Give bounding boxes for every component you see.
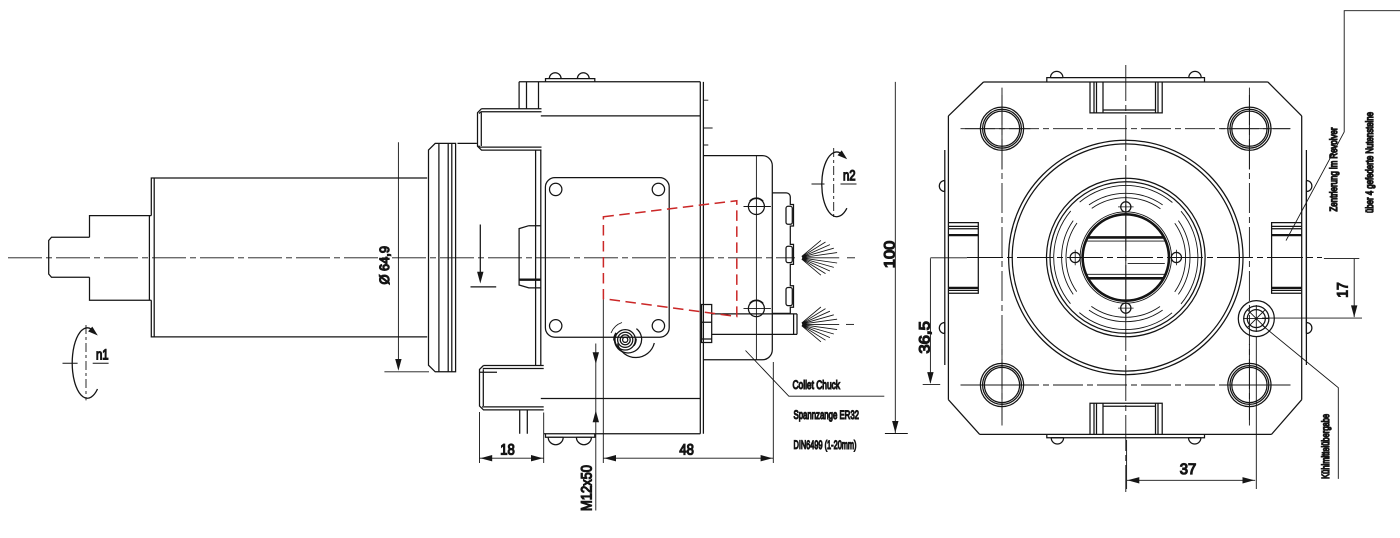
svg-text:Zentrierung im Revolver: Zentrierung im Revolver [1328, 127, 1340, 211]
svg-text:über 4 gefederte Nutensteine: über 4 gefederte Nutensteine [1364, 112, 1376, 213]
svg-text:Kühlmittelübergabe: Kühlmittelübergabe [1320, 414, 1332, 479]
svg-text:n1: n1 [96, 347, 109, 363]
svg-text:n2: n2 [843, 168, 856, 184]
svg-text:Ø 64,9: Ø 64,9 [377, 246, 392, 285]
svg-text:48: 48 [679, 441, 694, 458]
svg-text:M12x50: M12x50 [579, 465, 596, 511]
svg-text:Spannzange ER32: Spannzange ER32 [793, 408, 859, 422]
svg-text:36,5: 36,5 [917, 321, 934, 354]
svg-text:17: 17 [1335, 282, 1352, 298]
svg-text:DIN6499 (1-20mm): DIN6499 (1-20mm) [793, 438, 856, 452]
svg-text:100: 100 [882, 241, 899, 269]
svg-text:37: 37 [1180, 461, 1197, 478]
svg-text:Collet Chuck: Collet Chuck [792, 378, 840, 392]
svg-text:18: 18 [500, 441, 515, 458]
